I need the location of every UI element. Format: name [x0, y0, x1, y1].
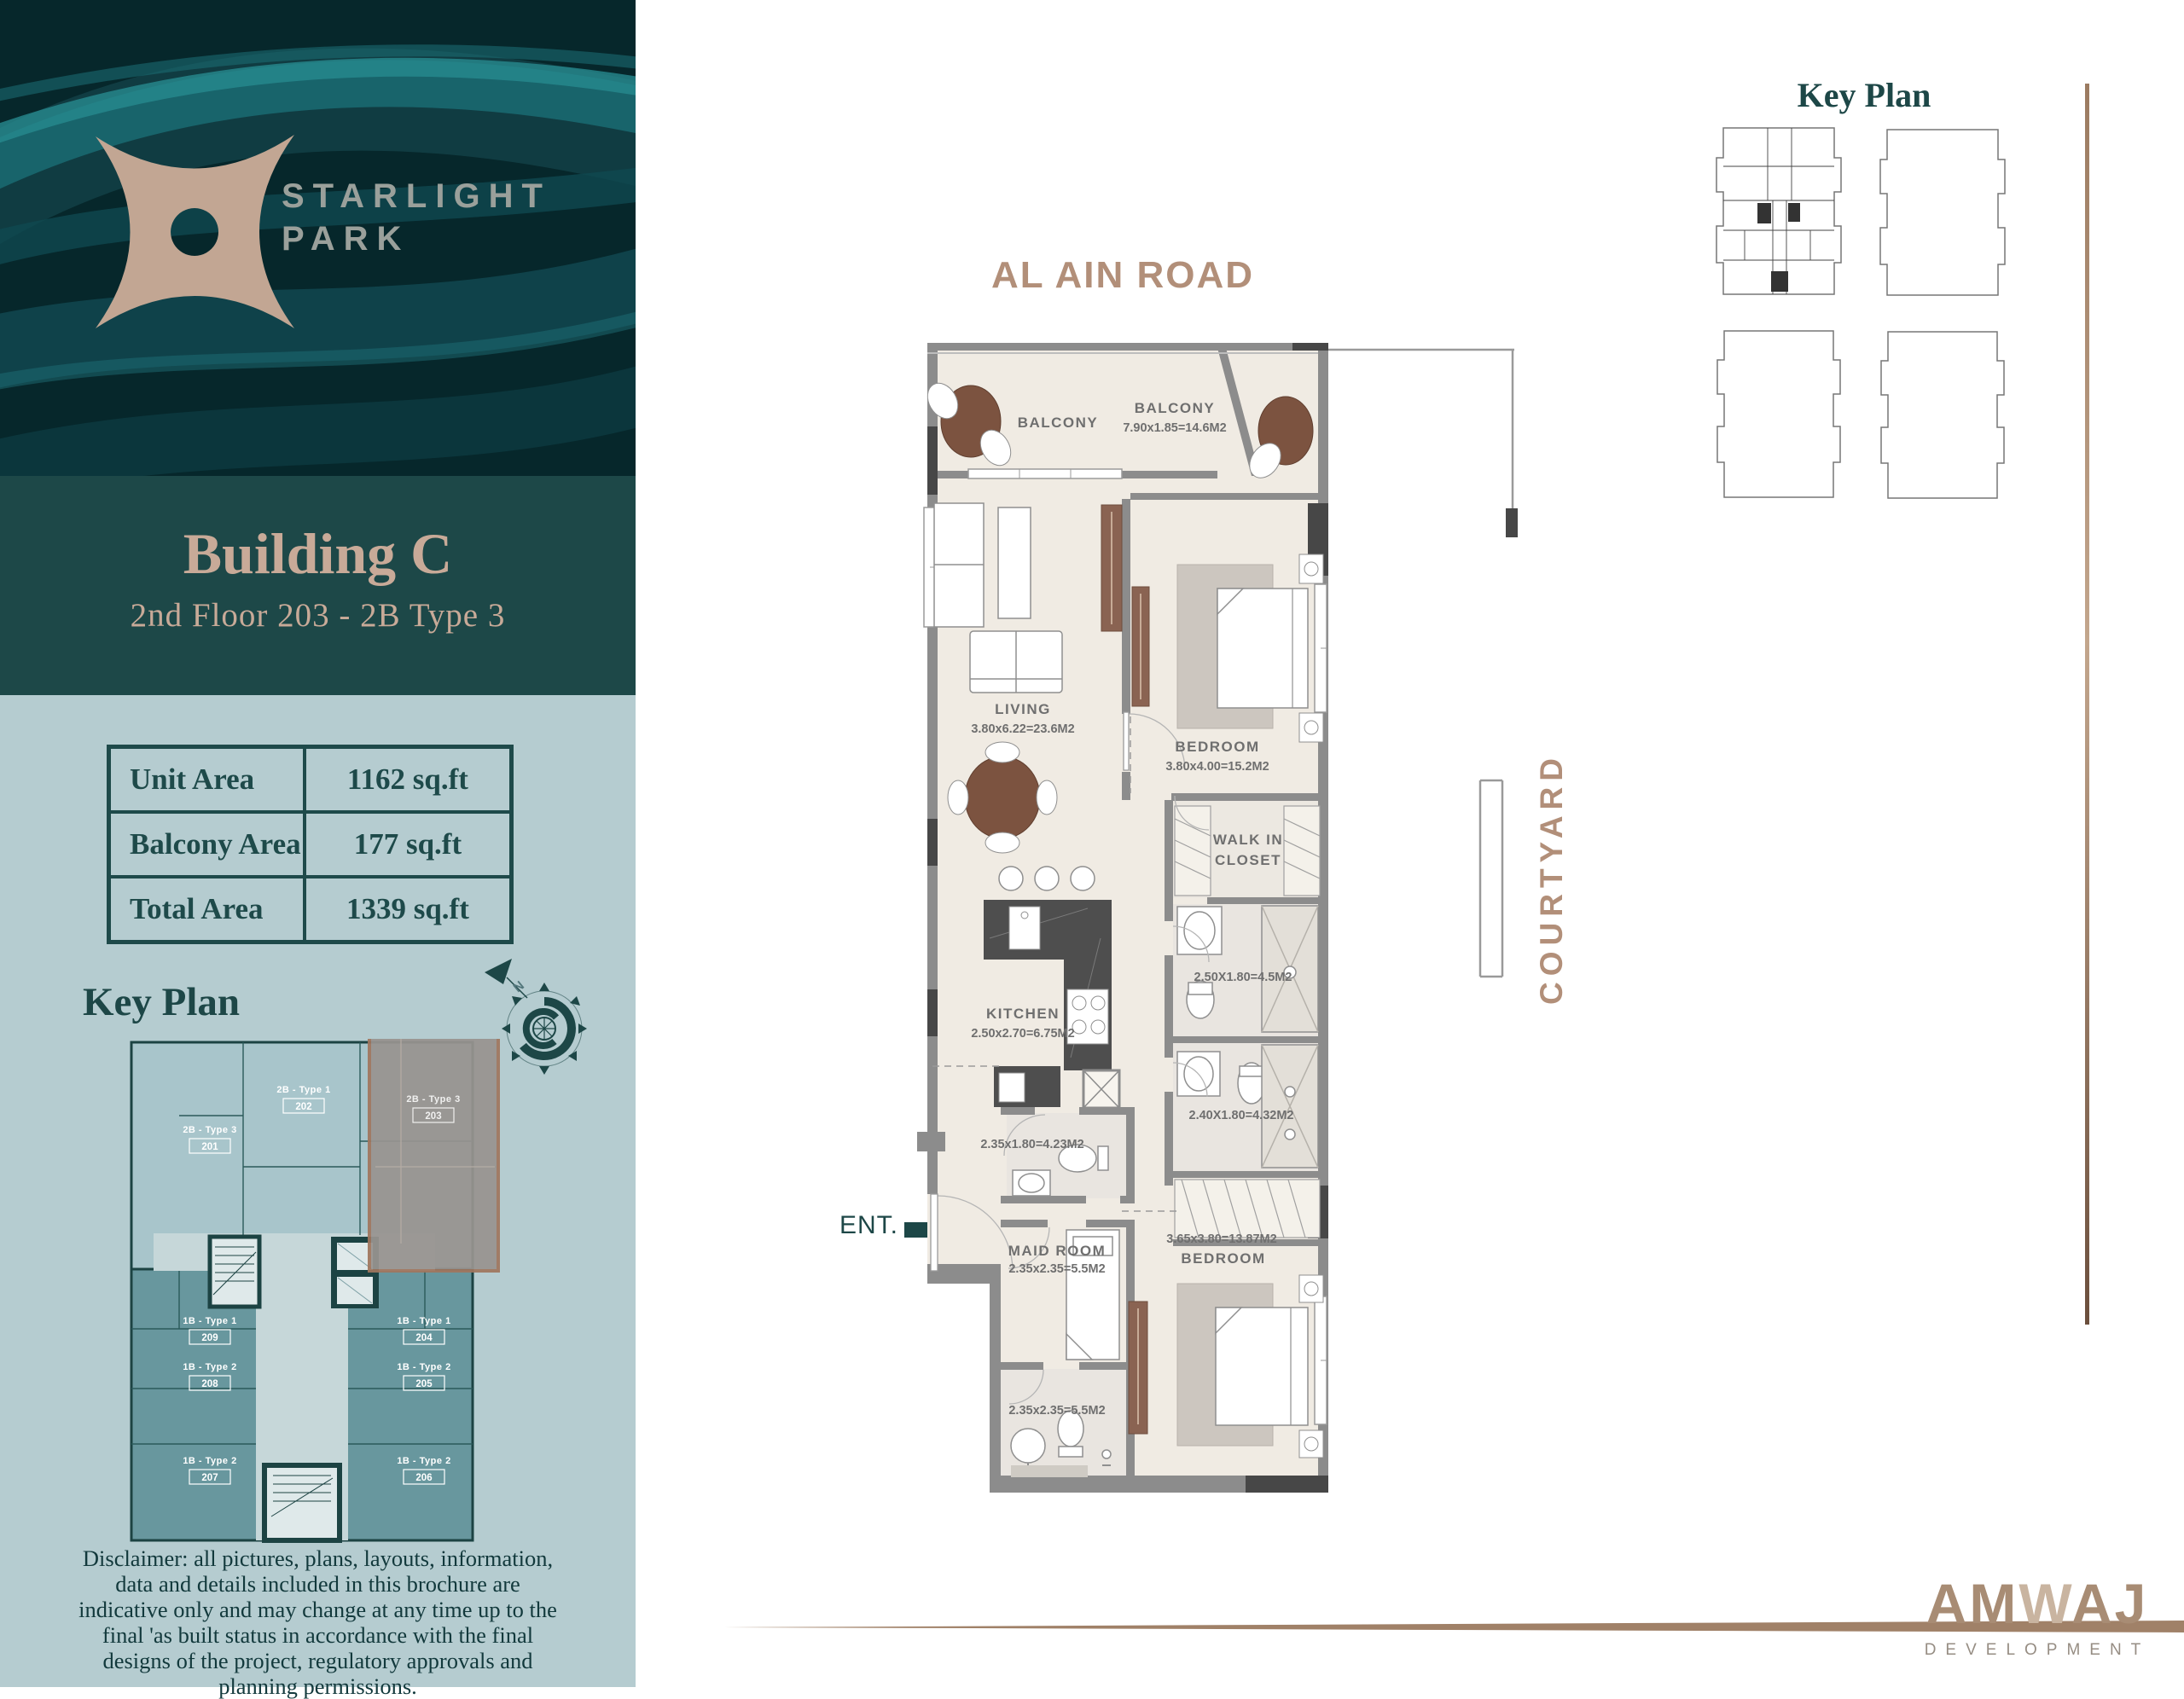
table-row: Total Area 1339 sq.ft	[111, 878, 509, 940]
unit-number-label: 204	[415, 1333, 433, 1343]
unit-number-label: 201	[201, 1142, 218, 1152]
unit-number-label: 208	[201, 1379, 218, 1389]
key-plan-right-buildings	[1706, 119, 2022, 503]
walk-in-closet-label-1: WALK IN	[1213, 832, 1283, 848]
unit-type-label: 1B - Type 2	[397, 1456, 450, 1466]
balcony-right-dims: 7.90x1.85=14.6M2	[1123, 421, 1226, 435]
brand-line1: STARLIGHT	[282, 175, 551, 217]
unit-type-label: 1B - Type 2	[183, 1456, 236, 1466]
balcony-area-value: 177 sq.ft	[306, 814, 509, 875]
compass-north-label: N	[511, 978, 527, 995]
developer-logo: AMWAJ DEVELOPMENT	[1909, 1571, 2165, 1660]
unit-type-label: 1B - Type 1	[397, 1316, 450, 1326]
unit-area-value: 1162 sq.ft	[306, 749, 509, 810]
unit-number-label: 203	[425, 1111, 441, 1122]
brand-wordmark: STARLIGHT PARK	[282, 175, 551, 260]
bedroom1-label: BEDROOM	[1175, 739, 1259, 755]
maid-room-label: MAID ROOM	[1008, 1243, 1107, 1259]
maid-bath-dims: 2.35x2.35=5.5M2	[1008, 1404, 1105, 1418]
kitchen-label: KITCHEN	[986, 1006, 1060, 1022]
floor-plan: BALCONY BALCONY 7.90x1.85=14.6M2 LIVING …	[917, 341, 1540, 1501]
brand-line2: PARK	[282, 217, 551, 260]
balcony-left-label: BALCONY	[1018, 415, 1099, 431]
unit-type-label: 1B - Type 1	[183, 1316, 236, 1326]
unit-type-label: 1B - Type 2	[183, 1362, 236, 1372]
bedroom1-dims: 3.80x4.00=15.2M2	[1165, 760, 1269, 774]
disclaimer-text: Disclaimer: all pictures, plans, layouts…	[77, 1545, 559, 1699]
vertical-divider	[2085, 84, 2089, 1325]
key-plan-left-schematic: 2B - Type 3 201 2B - Type 1 202 2B - Typ…	[128, 1039, 503, 1544]
page-subtitle: 2nd Floor 203 - 2B Type 3	[0, 596, 636, 635]
unit-type-label: 2B - Type 1	[276, 1085, 330, 1095]
total-area-label: Total Area	[111, 878, 306, 940]
bedroom2-label: BEDROOM	[1181, 1250, 1265, 1267]
table-row: Balcony Area 177 sq.ft	[111, 814, 509, 878]
unit-number-label: 207	[201, 1473, 218, 1483]
bath1-dims: 2.50X1.80=4.5M2	[1194, 971, 1292, 984]
bath2-dims: 2.40X1.80=4.32M2	[1189, 1109, 1294, 1122]
developer-name-part: AJ	[2071, 1572, 2148, 1635]
hero-image: STARLIGHT PARK	[0, 0, 636, 476]
maid-room-dims: 2.35x2.35=5.5M2	[1008, 1262, 1105, 1276]
bedroom2-dims: 3.65x3.80=13.87M2	[1166, 1232, 1276, 1246]
bath3-dims: 2.35x1.80=4.23M2	[980, 1138, 1083, 1151]
developer-name: AMWAJ	[1909, 1571, 2165, 1636]
key-plan-left-title: Key Plan	[83, 979, 240, 1025]
area-table: Unit Area 1162 sq.ft Balcony Area 177 sq…	[107, 745, 514, 944]
sidebar: STARLIGHT PARK Building C 2nd Floor 203 …	[0, 0, 636, 1687]
key-plan-left-highlighted-unit	[369, 1039, 498, 1271]
balcony-area-label: Balcony Area	[111, 814, 306, 875]
unit-area-label: Unit Area	[111, 749, 306, 810]
developer-tagline: DEVELOPMENT	[1909, 1641, 2165, 1660]
kitchen-dims: 2.50x2.70=6.75M2	[971, 1027, 1074, 1041]
brochure-page: { "brand": { "name_line1": "STARLIGHT", …	[0, 0, 2184, 1687]
page-title: Building C	[0, 520, 636, 588]
unit-number-label: 206	[415, 1473, 432, 1483]
entrance-label: ENT.	[839, 1211, 898, 1240]
unit-number-label: 209	[201, 1333, 218, 1343]
unit-type-label: 2B - Type 3	[183, 1125, 236, 1135]
living-label: LIVING	[995, 701, 1051, 717]
road-label: AL AIN ROAD	[917, 254, 1328, 297]
key-plan-right-title: Key Plan	[1740, 75, 1988, 115]
unit-type-label: 1B - Type 2	[397, 1362, 450, 1372]
balcony-right-label: BALCONY	[1135, 400, 1216, 416]
unit-number-label: 202	[295, 1102, 311, 1112]
unit-type-label: 2B - Type 3	[406, 1094, 460, 1105]
table-row: Unit Area 1162 sq.ft	[111, 749, 509, 814]
building-header: Building C 2nd Floor 203 - 2B Type 3	[0, 476, 636, 695]
living-dims: 3.80x6.22=23.6M2	[971, 722, 1074, 736]
developer-name-part: AM	[1926, 1572, 2019, 1635]
developer-name-part: W	[2018, 1572, 2071, 1635]
total-area-value: 1339 sq.ft	[306, 878, 509, 940]
unit-number-label: 205	[415, 1379, 433, 1389]
walk-in-closet-label-2: CLOSET	[1215, 852, 1281, 868]
